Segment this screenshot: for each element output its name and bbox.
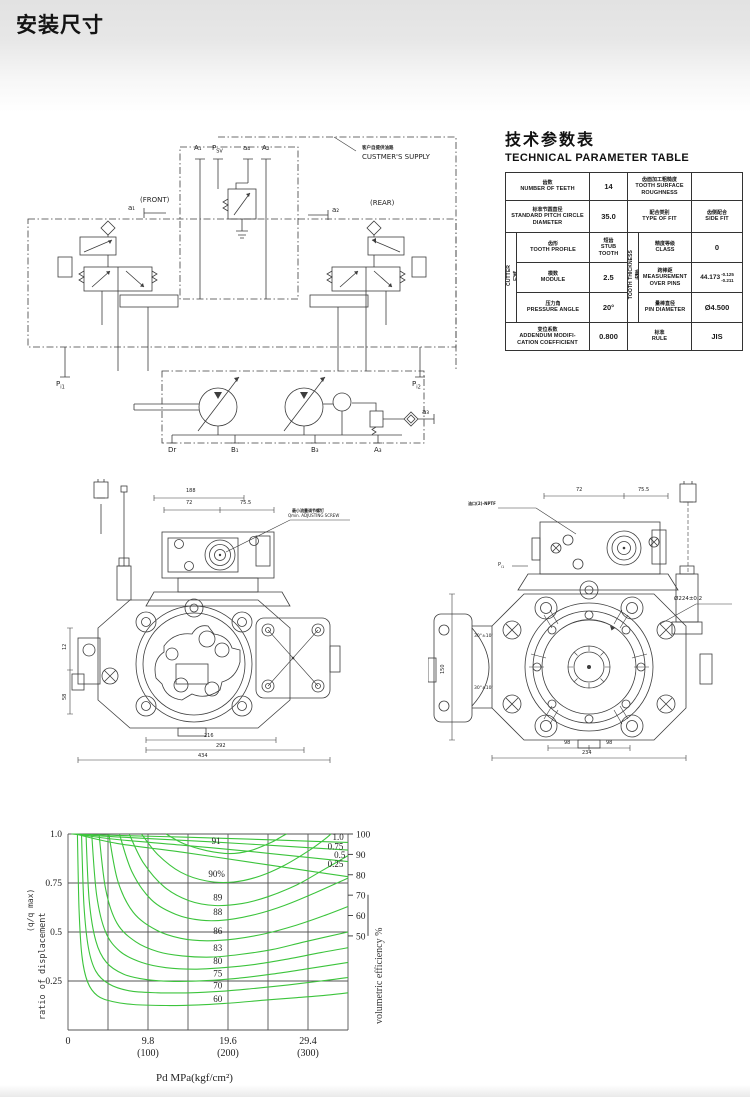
param-class: 精度等级 CLASS [639, 233, 692, 263]
param-addendum-modification: 变位系数 ADDENDUM MODIFI- CATION COEFFICIENT [506, 323, 590, 351]
dim-98b: 98 [606, 740, 612, 746]
customer-supply-label-en: CUSTMER'S SUPPLY [362, 154, 430, 161]
table-title-en: TECHNICAL PARAMETER TABLE [505, 152, 745, 164]
svg-text:100: 100 [356, 831, 371, 841]
svg-text:70: 70 [356, 892, 366, 902]
dim-150: 150 [440, 664, 446, 674]
page-title: 安装尺寸 [0, 0, 750, 39]
param-group-tooth-thickness: 齿厚TOOTH THICKNESS [628, 233, 639, 323]
efficiency-chart: 1.00.750.50.25100908070605009.8(100)19.6… [18, 824, 390, 1097]
front-label: (FRONT) [140, 197, 169, 204]
document-page: 安装尺寸 [0, 0, 750, 1097]
svg-text:19.6: 19.6 [219, 1036, 237, 1047]
svg-text:9.8: 9.8 [142, 1036, 155, 1047]
param-number-of-teeth: 齿数 NUMBER OF TEETH [506, 173, 590, 201]
param-number-of-teeth-value: 14 [590, 173, 628, 201]
svg-text:83: 83 [213, 943, 223, 953]
y-axis-label-left: ratio of displacement [38, 913, 48, 1020]
dim-75-5: 75.5 [638, 487, 649, 493]
param-tooth-surface-roughness-value [692, 173, 743, 201]
svg-text:0.25: 0.25 [328, 859, 344, 869]
param-tooth-profile: 齿形 TOOTH PROFILE [517, 233, 590, 263]
svg-text:(300): (300) [297, 1048, 319, 1059]
pump-rear-view-art [428, 478, 736, 773]
svg-text:0.5: 0.5 [50, 928, 62, 938]
dim-234: 234 [582, 750, 592, 756]
dim-58: 58 [62, 694, 68, 700]
svg-text:90%: 90% [208, 869, 225, 879]
svg-text:(200): (200) [217, 1048, 239, 1059]
x-axis-title-line1: Pd MPa(kgf/cm²) [156, 1072, 233, 1084]
param-pressure-angle: 压力角 PRESSURE ANGLE [517, 293, 590, 323]
svg-text:80: 80 [356, 871, 366, 881]
port-callout-label: 油口(2)-NPTF [468, 501, 496, 507]
port-label-a2: a₂ [332, 207, 339, 214]
pump-drawing-front-view: 188 72 75.5 最小流量调节螺钉 Qmin. ADJUSTING SCR… [58, 478, 358, 778]
svg-text:75: 75 [213, 969, 223, 979]
param-pressure-angle-value: 20° [590, 293, 628, 323]
port-label-a1-top: A₁ [194, 145, 202, 152]
svg-text:86: 86 [213, 926, 223, 936]
dim-434: 434 [198, 753, 208, 759]
param-standard-pitch-circle-diameter: 标准节圆直径 STANDARD PITCH CIRCLE DIAMETER [506, 201, 590, 233]
svg-text:50: 50 [356, 932, 366, 942]
svg-text:60: 60 [356, 912, 366, 922]
param-standard-pitch-value: 35.0 [590, 201, 628, 233]
param-addendum-value: 0.800 [590, 323, 628, 351]
table-title-zh: 技术参数表 [505, 126, 745, 150]
svg-text:90: 90 [356, 851, 366, 861]
connector-icon [94, 482, 108, 498]
param-pin-diameter: 量棒直径 PIN DIAMETER [639, 293, 692, 323]
port-label-b3: B₃ [311, 447, 319, 454]
port-label-dr: Dr [168, 447, 176, 454]
parameter-table: 齿数 NUMBER OF TEETH 14 齿面加工粗糙度 TOOTH SURF… [505, 172, 743, 351]
port-label-a1: a₁ [128, 205, 135, 212]
param-tooth-surface-roughness: 齿面加工粗糙度 TOOTH SURFACE ROUGHNESS [628, 173, 692, 201]
dim-292: 292 [216, 743, 226, 749]
angle-label-1: 30°±10' [474, 634, 493, 639]
port-label-a4: a₄ [243, 145, 250, 152]
svg-text:0.75: 0.75 [45, 879, 62, 889]
svg-text:60: 60 [213, 994, 223, 1004]
port-label-pi2: Pi2 [412, 381, 421, 390]
hydraulic-circuit-art [22, 125, 462, 460]
port-label-pi1: Pi1 [56, 381, 65, 390]
dim-216: 216 [204, 733, 214, 739]
svg-text:91: 91 [212, 836, 221, 846]
pi1-label: Pi1 [498, 562, 504, 569]
svg-text:80: 80 [213, 956, 223, 966]
dia-224-label: Ø224±0.2 [674, 596, 702, 602]
page-header: 安装尺寸 [0, 0, 750, 112]
port-label-a2-top: A₂ [262, 145, 270, 152]
svg-text:1.0: 1.0 [50, 830, 62, 840]
svg-text:0: 0 [66, 1036, 71, 1047]
y-axis-label-right: volumetric efficiency % [374, 928, 385, 1024]
qmin-screw-label-en: Qmin. ADJUSTING SCREW [288, 513, 339, 518]
param-type-of-fit: 配合类别 TYPE OF FIT [628, 201, 692, 233]
svg-text:70: 70 [213, 981, 223, 991]
port-label-b1: B₁ [231, 447, 239, 454]
param-class-value: 0 [692, 233, 743, 263]
param-measurement-over-pins-value: 44.173-0.125-0.211 [692, 263, 743, 293]
param-pin-diameter-value: Ø4.500 [692, 293, 743, 323]
efficiency-chart-plot: 1.00.750.50.25100908070605009.8(100)19.6… [18, 824, 390, 1068]
port-label-a3-bottom: A₃ [374, 447, 382, 454]
customer-supply-label-zh: 客户自提供油路 [362, 147, 394, 152]
pump-drawing-rear-view: 72 75.5 油口(2)-NPTF Pi1 Ø224±0.2 30°±10' … [428, 478, 736, 773]
dim-98a: 98 [564, 740, 570, 746]
svg-text:89: 89 [213, 893, 223, 903]
dim-75-5: 75.5 [240, 500, 251, 506]
rear-label: (REAR) [370, 200, 394, 207]
svg-text:88: 88 [213, 907, 223, 917]
param-group-cutter: 刀具CUTTER [506, 233, 517, 323]
port-label-psv: PSV [212, 145, 223, 154]
param-rule-value: JIS [692, 323, 743, 351]
dim-12: 12 [62, 644, 68, 650]
param-rule: 标准 RULE [628, 323, 692, 351]
svg-text:29.4: 29.4 [299, 1036, 317, 1047]
y-axis-label-qmax: (q/q max) [26, 889, 35, 932]
dim-188: 188 [186, 488, 196, 494]
technical-parameter-table: 技术参数表 TECHNICAL PARAMETER TABLE 齿数 NUMBE… [505, 126, 745, 351]
page-bottom-band [0, 1085, 750, 1097]
dim-72: 72 [576, 487, 582, 493]
hydraulic-circuit-diagram: A₁ PSV a₄ A₂ 客户自提供油路 CUSTMER'S SUPPLY (F… [22, 125, 462, 460]
param-measurement-over-pins: 跨棒距 MEASUREMENT OVER PINS [639, 263, 692, 293]
svg-text:(100): (100) [137, 1048, 159, 1059]
param-module-value: 2.5 [590, 263, 628, 293]
connector-icon [680, 484, 696, 502]
param-type-of-fit-value: 齿侧配合 SIDE FIT [692, 201, 743, 233]
param-tooth-profile-value: 短齿 STUB TOOTH [590, 233, 628, 263]
port-label-a3: a₃ [422, 409, 429, 416]
angle-label-2: 30°±10' [474, 686, 493, 691]
dim-72: 72 [186, 500, 192, 506]
param-module: 模数 MODULE [517, 263, 590, 293]
